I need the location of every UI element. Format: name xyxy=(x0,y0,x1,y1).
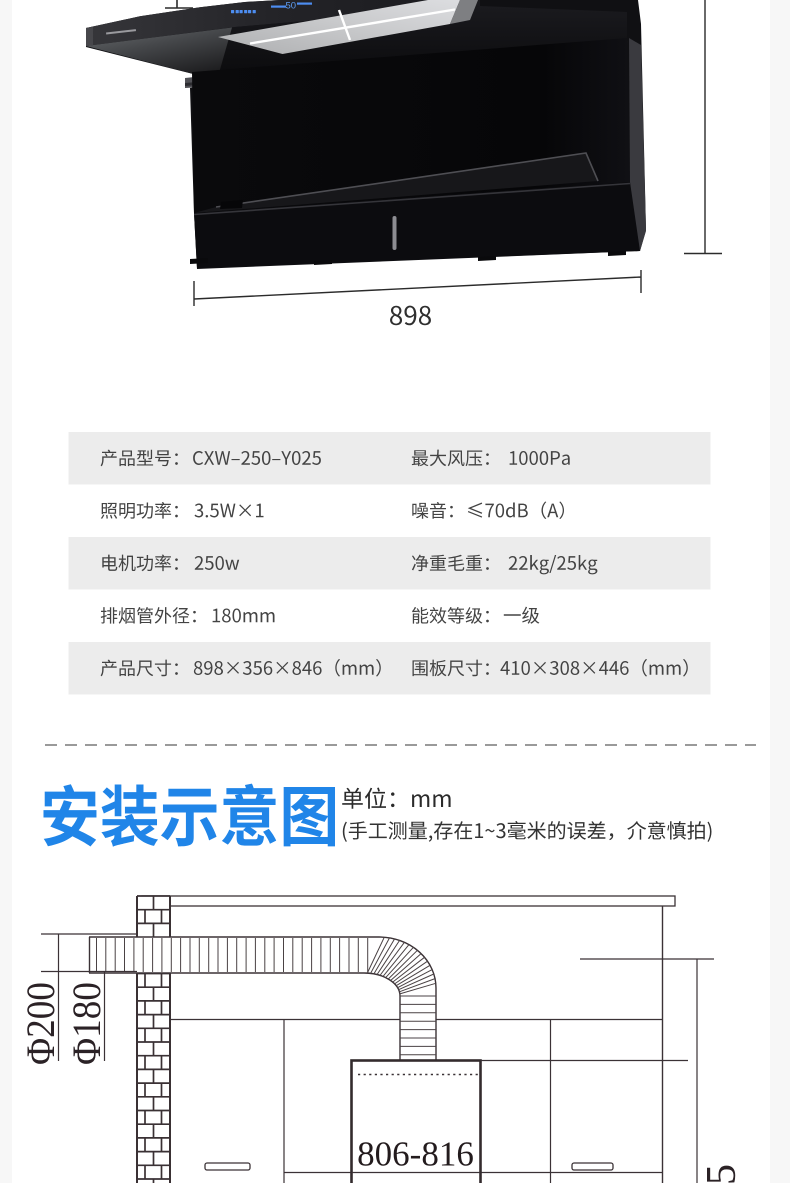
svg-text:806-816: 806-816 xyxy=(357,1135,474,1174)
svg-text:Φ180: Φ180 xyxy=(66,982,109,1065)
svg-text:Φ200: Φ200 xyxy=(20,982,63,1065)
svg-text:5: 5 xyxy=(699,1164,745,1183)
svg-text:50: 50 xyxy=(286,1,297,12)
